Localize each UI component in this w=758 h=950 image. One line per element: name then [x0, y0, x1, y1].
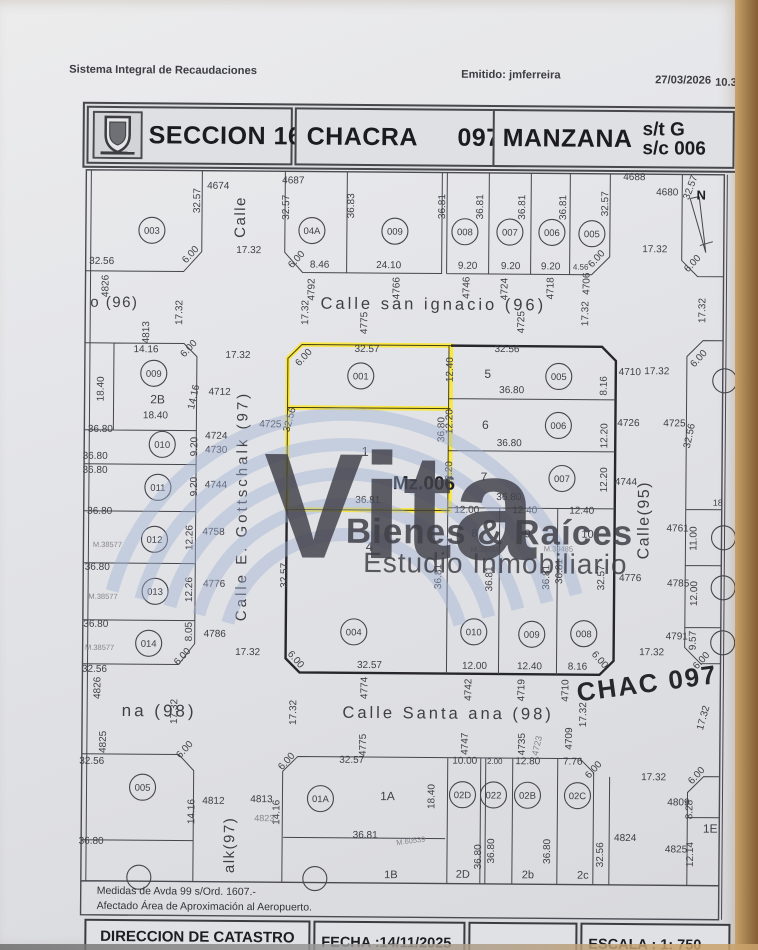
- map-label: 17.32: [695, 704, 712, 731]
- map-label: 8.46: [310, 260, 330, 271]
- map-label: 36.81: [517, 194, 528, 220]
- map-label: 12.40: [445, 357, 456, 383]
- map-label: 36.83: [346, 193, 357, 219]
- map-label: 4674: [207, 181, 230, 192]
- map-label: 12.20: [599, 467, 610, 493]
- map-label: 2c: [577, 870, 589, 882]
- parcel-number-circle-partial: [711, 526, 735, 550]
- map-label: M.38577: [85, 643, 114, 652]
- map-label: 36.81: [558, 195, 569, 221]
- map-label: Calle san ignacio (96): [320, 295, 546, 315]
- map-label: 36.80: [85, 562, 111, 573]
- parcel-number: 02C: [569, 791, 587, 802]
- north-arrow-icon: [690, 197, 713, 253]
- map-label: 4812: [202, 796, 225, 807]
- map-label: 17.32: [288, 699, 299, 725]
- map-label: 12.80: [515, 756, 541, 767]
- photo-bottom-edge: [0, 944, 758, 950]
- map-label: 4761: [666, 523, 689, 534]
- map-label: 36.80: [473, 844, 484, 870]
- map-label: 18.40: [143, 410, 169, 421]
- map-label: 5: [484, 367, 491, 381]
- map-label: 9.20: [501, 261, 521, 272]
- map-label: 1A: [380, 789, 395, 803]
- parcel-number: 010: [154, 440, 170, 451]
- map-label: 17.32: [300, 300, 311, 326]
- map-label: 4735: [517, 733, 528, 756]
- map-label: 36.80: [499, 385, 525, 396]
- map-label: 17.32: [644, 366, 670, 377]
- map-label: 17.32: [641, 772, 667, 783]
- map-label: 9.20: [541, 261, 561, 272]
- note-line-2: Afectado Área de Aproximación al Aeropue…: [97, 899, 313, 916]
- map-label: 17.32: [174, 300, 185, 326]
- parcel-number: 009: [146, 369, 162, 380]
- map-label: 36.80: [542, 838, 553, 864]
- map-label: 14.16: [186, 383, 202, 410]
- map-label: 12.40: [517, 661, 543, 672]
- scanned-document-photo: Sistema Integral de Recaudaciones Emitid…: [0, 0, 758, 950]
- map-label: 4687: [282, 175, 305, 186]
- map-label: 4724: [499, 277, 510, 300]
- map-label: 6.00: [586, 248, 608, 270]
- map-label: 9.20: [458, 261, 478, 272]
- map-label: 17.32: [697, 298, 708, 324]
- map-label: N: [696, 188, 706, 203]
- map-label: 12.14: [685, 842, 696, 868]
- map-label: 4706: [581, 272, 592, 295]
- map-label: 6.00: [174, 739, 196, 761]
- map-label: 4747: [460, 732, 471, 755]
- map-label: 17.32: [235, 647, 261, 658]
- map-label: 4718: [545, 277, 556, 300]
- map-label: 32.57: [600, 191, 611, 217]
- map-label: 36.81: [353, 830, 379, 841]
- parcel-number: 007: [554, 474, 570, 485]
- map-label: 4823: [254, 813, 274, 823]
- map-label: 17.32: [639, 647, 665, 658]
- map-label: 2B: [150, 392, 165, 406]
- map-label: 4785: [667, 578, 690, 589]
- map-label: 6.00: [276, 750, 298, 772]
- map-label: 18: [713, 498, 723, 508]
- parcel-number: 004: [346, 627, 362, 638]
- parcel-number: 02D: [454, 790, 472, 801]
- map-label: 4680: [656, 187, 679, 198]
- map-label: M.38577: [88, 592, 117, 601]
- map-label: 4792: [306, 278, 317, 301]
- map-label: 6.00: [688, 348, 710, 370]
- paper-sheet: Sistema Integral de Recaudaciones Emitid…: [0, 0, 740, 950]
- parcel-number: 010: [466, 627, 482, 638]
- parcel-number: 006: [550, 421, 566, 432]
- parcel-number: 009: [524, 630, 540, 641]
- parcel-number-circle-partial: [711, 631, 735, 655]
- map-lines-bottom: [81, 754, 720, 886]
- cadastral-map: 00304A0090080070060050090100110120130140…: [0, 0, 740, 950]
- map-label: 12.00: [689, 581, 700, 607]
- parcel-number: 01A: [312, 794, 330, 805]
- map-label: 32.56: [79, 756, 105, 767]
- map-label: 4774: [359, 676, 370, 699]
- map-label: 17.32: [225, 350, 251, 361]
- map-label: 6.00: [686, 765, 708, 787]
- parcel-number: 014: [141, 639, 157, 650]
- map-label: 2D: [456, 869, 470, 881]
- map-label: 8.28: [684, 799, 695, 819]
- parcel-number: 005: [584, 229, 600, 240]
- map-label: 11.00: [688, 526, 699, 551]
- map-label: 6.00: [286, 249, 308, 271]
- map-label: 10.00: [452, 756, 478, 767]
- map-label: 9.20: [189, 436, 200, 456]
- map-label: 9.20: [189, 476, 200, 496]
- map-label: M.38577: [93, 540, 122, 549]
- map-label: 32.56: [82, 664, 108, 675]
- map-label: 1B: [384, 869, 398, 881]
- map-label: 14.16: [133, 344, 159, 355]
- map-label: 4826: [92, 676, 103, 699]
- map-label: 4746: [461, 276, 472, 299]
- parcel-number: 02B: [519, 791, 536, 802]
- map-label: 36.80: [87, 506, 113, 517]
- map-label: 8.16: [568, 662, 588, 673]
- parcel-number: 04A: [303, 226, 321, 237]
- map-label: 18.40: [426, 784, 437, 810]
- map-label: 8.05: [184, 621, 195, 641]
- map-label: 2.00: [487, 757, 503, 766]
- map-label: 18.40: [96, 376, 107, 402]
- map-label: 4775: [359, 311, 370, 334]
- map-label: 36.80: [486, 838, 497, 864]
- map-label: alk(97): [221, 817, 238, 873]
- map-label: Calle(95): [635, 481, 653, 560]
- map-label: 2b: [522, 869, 534, 881]
- parcel-number: 009: [387, 227, 403, 238]
- parcel-number: 007: [502, 228, 518, 239]
- map-label: 36.80: [88, 424, 114, 435]
- map-label: 6.00: [583, 759, 605, 781]
- map-label: 1E: [703, 822, 718, 836]
- map-label: 6.00: [682, 253, 704, 275]
- parcel-number: 008: [576, 629, 592, 640]
- map-label: 17.32: [580, 301, 591, 327]
- map-label: 32.56: [595, 842, 606, 868]
- map-label: 14.16: [186, 799, 197, 825]
- map-label: M.60539: [396, 834, 426, 847]
- photo-background-edge: [735, 0, 758, 950]
- watermark-line2: Estudio Inmobiliario: [363, 547, 628, 580]
- map-label: na (98): [122, 701, 197, 721]
- map-label: 4719: [516, 679, 527, 702]
- map-label: 32.56: [89, 256, 115, 267]
- map-label: 4742: [463, 678, 474, 701]
- map-label: 4726: [617, 418, 640, 429]
- map-label: 17.32: [642, 244, 668, 255]
- map-label: 36.80: [79, 836, 105, 847]
- map-label: 4688: [623, 172, 646, 183]
- map-label: 4712: [208, 387, 231, 398]
- map-label: 17.32: [236, 245, 262, 256]
- parcel-number: 005: [551, 372, 567, 383]
- map-notes: Medidas de Avda 99 s/Ord. 1607.- Afectad…: [97, 884, 313, 916]
- map-label: 36.81: [437, 194, 448, 220]
- map-label: 12.20: [599, 423, 610, 449]
- map-label: 4709: [564, 727, 575, 750]
- map-label: CHAC 097: [575, 659, 719, 707]
- map-label: 4791: [666, 631, 689, 642]
- parcel-number: 022: [486, 790, 502, 801]
- map-label: 4723: [530, 735, 544, 757]
- map-label: 4710: [619, 367, 642, 378]
- map-label: 7.76: [563, 757, 583, 768]
- map-label: 4825: [98, 730, 109, 753]
- map-label: 9.57: [688, 630, 699, 650]
- parcel-number: 001: [353, 371, 369, 382]
- map-label: 32.56: [494, 344, 520, 355]
- map-label: 4775: [358, 733, 369, 756]
- map-label: 36.80: [82, 465, 108, 476]
- parcel-number-circle-partial: [713, 369, 737, 393]
- map-label: 4766: [391, 277, 402, 300]
- map-label: 36.80: [83, 451, 109, 462]
- map-label: 4786: [204, 629, 227, 640]
- parcel-number: 008: [457, 227, 473, 238]
- map-label: 8.16: [599, 376, 610, 396]
- map-label: 4813: [141, 321, 152, 344]
- map-label: 4824: [614, 833, 637, 844]
- map-label: 32.57: [339, 755, 365, 766]
- map-label: Calle: [232, 196, 249, 238]
- map-label: 4725: [516, 311, 527, 334]
- map-label: 24.10: [376, 260, 402, 271]
- map-label: 4725: [663, 418, 686, 429]
- map-label: 4710: [560, 679, 571, 702]
- parcel-number-circle-partial: [711, 576, 735, 600]
- parcel-number: 005: [135, 783, 151, 794]
- map-label: 32.57: [192, 188, 203, 214]
- map-label: 36.80: [83, 619, 109, 630]
- map-label: 32.57: [354, 344, 380, 355]
- map-label: 32.57: [281, 194, 292, 220]
- map-label: 12.00: [462, 661, 488, 672]
- parcel-number: 006: [544, 228, 560, 239]
- parcel-number: 003: [144, 226, 160, 237]
- map-label: 36.81: [475, 194, 486, 220]
- note-line-1: Medidas de Avda 99 s/Ord. 1607.-: [97, 884, 313, 901]
- map-label: o (96): [90, 294, 138, 311]
- map-label: 4813: [250, 794, 273, 805]
- map-label: 32.57: [357, 660, 383, 671]
- map-label: Calle Santa ana (98): [342, 704, 553, 724]
- map-label: 4744: [615, 477, 638, 488]
